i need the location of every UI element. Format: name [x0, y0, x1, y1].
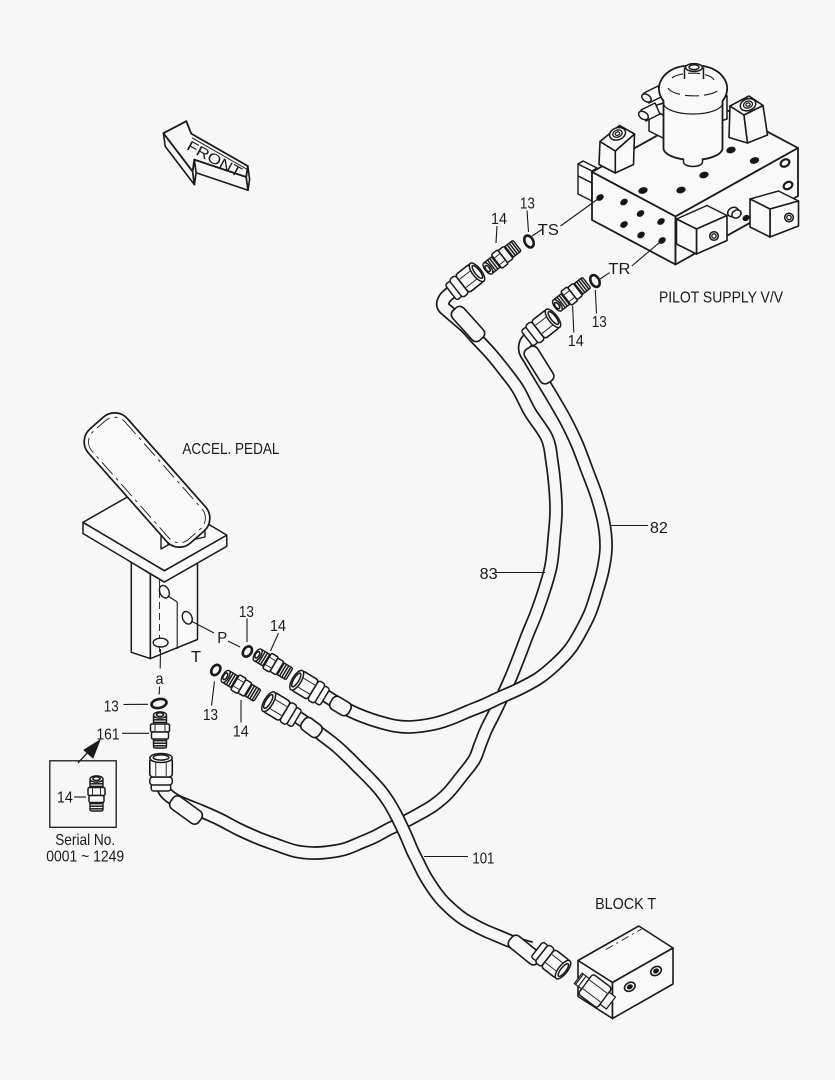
svg-text:a: a: [156, 671, 164, 688]
svg-text:161: 161: [97, 726, 120, 743]
svg-text:13: 13: [520, 196, 535, 213]
svg-text:T: T: [191, 649, 201, 666]
svg-text:Serial No.: Serial No.: [55, 832, 115, 849]
svg-text:83: 83: [480, 566, 498, 583]
svg-text:P: P: [217, 630, 227, 647]
svg-text:14: 14: [57, 790, 73, 807]
svg-text:82: 82: [650, 520, 668, 537]
svg-text:ACCEL. PEDAL: ACCEL. PEDAL: [182, 441, 279, 458]
svg-text:13: 13: [239, 604, 254, 621]
svg-text:13: 13: [104, 699, 119, 716]
svg-text:TR: TR: [608, 261, 630, 278]
svg-text:13: 13: [203, 707, 218, 724]
svg-text:14: 14: [491, 211, 507, 228]
svg-text:PILOT SUPPLY V/V: PILOT SUPPLY V/V: [659, 290, 783, 307]
svg-text:14: 14: [270, 618, 286, 635]
svg-text:14: 14: [568, 333, 584, 350]
svg-text:13: 13: [592, 314, 607, 331]
svg-text:101: 101: [472, 851, 494, 868]
svg-text:0001 ~ 1249: 0001 ~ 1249: [46, 849, 124, 866]
svg-text:BLOCK T: BLOCK T: [595, 896, 656, 913]
svg-text:14: 14: [233, 724, 249, 741]
